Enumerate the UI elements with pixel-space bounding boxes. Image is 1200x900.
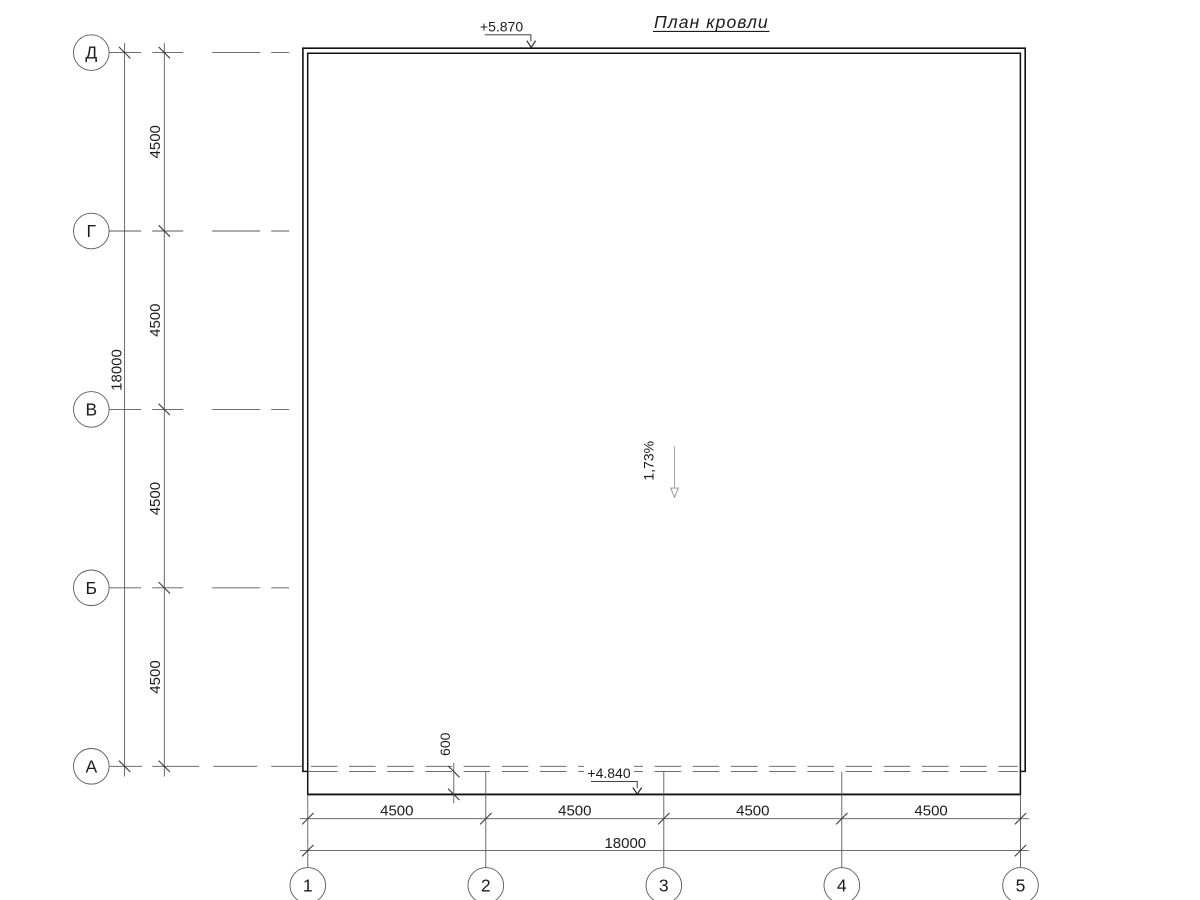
svg-text:4500: 4500 xyxy=(736,803,769,820)
svg-text:+5.870: +5.870 xyxy=(480,18,523,34)
svg-text:4500: 4500 xyxy=(380,803,413,820)
svg-text:Д: Д xyxy=(85,43,97,63)
svg-text:1: 1 xyxy=(303,875,313,895)
svg-text:В: В xyxy=(85,399,97,419)
svg-text:1,73%: 1,73% xyxy=(641,441,657,481)
svg-text:+4.840: +4.840 xyxy=(587,765,630,781)
svg-text:4500: 4500 xyxy=(147,304,164,337)
svg-text:3: 3 xyxy=(659,875,669,895)
svg-text:4500: 4500 xyxy=(147,125,164,158)
svg-text:Б: Б xyxy=(86,578,97,598)
svg-text:4500: 4500 xyxy=(914,803,947,820)
svg-text:18000: 18000 xyxy=(604,835,646,852)
svg-text:А: А xyxy=(85,756,97,776)
svg-text:План кровли: План кровли xyxy=(654,12,769,32)
svg-text:600: 600 xyxy=(437,732,453,756)
svg-text:5: 5 xyxy=(1016,875,1026,895)
svg-text:4500: 4500 xyxy=(147,482,164,515)
svg-text:2: 2 xyxy=(481,875,491,895)
svg-text:4500: 4500 xyxy=(558,803,591,820)
svg-text:4500: 4500 xyxy=(147,660,164,693)
svg-text:4: 4 xyxy=(837,875,847,895)
svg-text:18000: 18000 xyxy=(108,349,125,391)
svg-text:Г: Г xyxy=(87,221,97,241)
